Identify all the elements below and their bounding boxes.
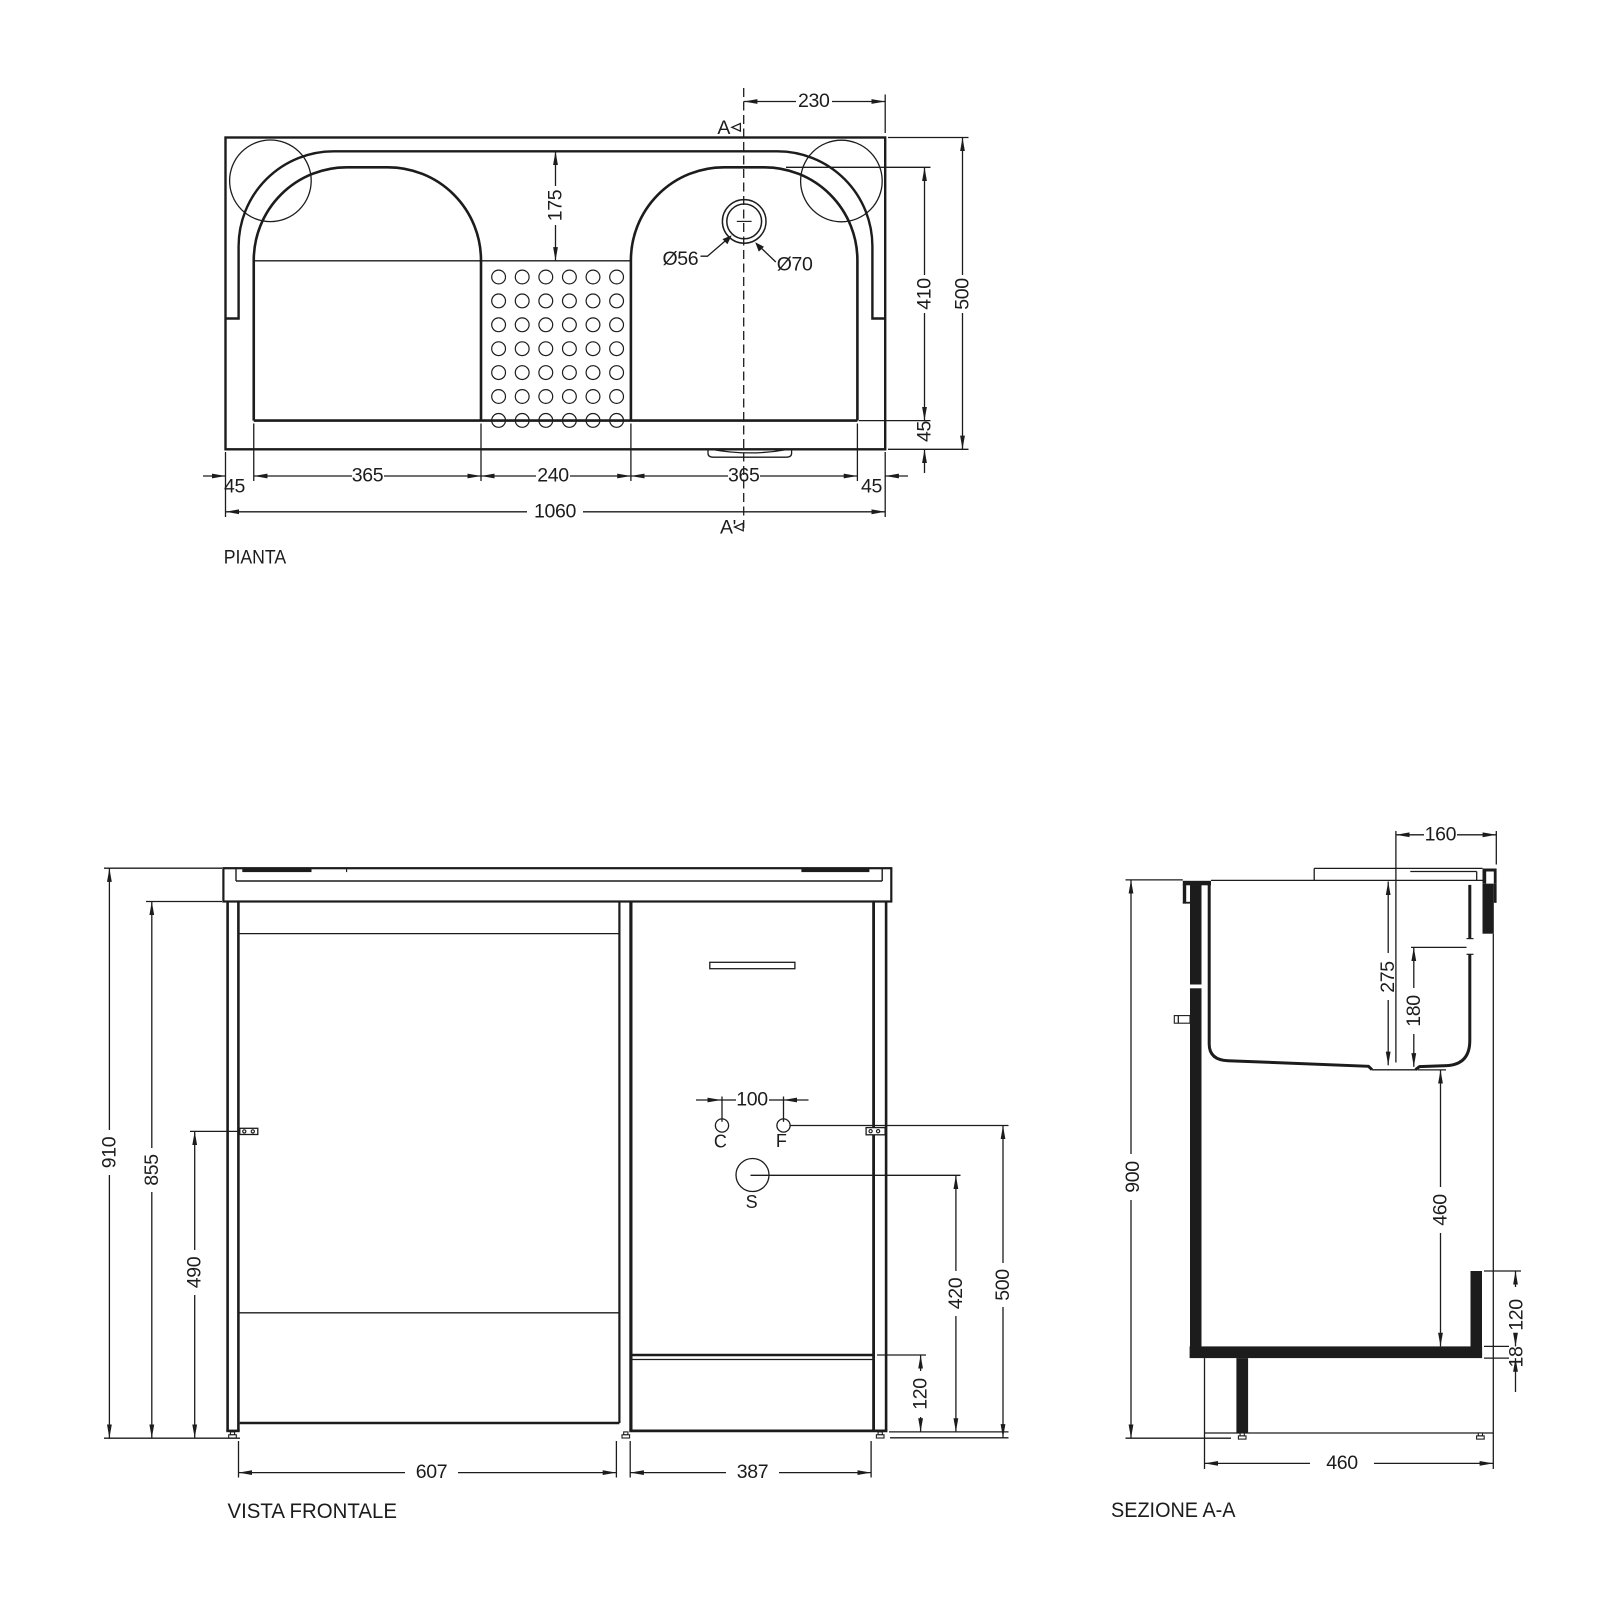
svg-text:160: 160 [1425,824,1457,846]
svg-text:SEZIONE A-A: SEZIONE A-A [1111,1499,1236,1522]
svg-text:500: 500 [992,1269,1014,1301]
svg-text:Ø56: Ø56 [662,248,698,270]
svg-text:C: C [714,1132,727,1152]
svg-text:100: 100 [736,1089,768,1111]
svg-text:900: 900 [1122,1161,1144,1193]
svg-text:365: 365 [728,465,760,487]
svg-text:45: 45 [224,476,245,498]
svg-text:275: 275 [1377,961,1399,993]
svg-text:1060: 1060 [534,500,576,522]
svg-text:VISTA FRONTALE: VISTA FRONTALE [228,1500,398,1523]
svg-text:420: 420 [945,1277,967,1309]
svg-text:460: 460 [1326,1452,1358,1474]
svg-text:490: 490 [184,1256,206,1288]
svg-text:500: 500 [952,278,974,310]
svg-text:855: 855 [141,1154,163,1186]
svg-text:F: F [776,1131,787,1151]
svg-text:PIANTA: PIANTA [224,547,287,569]
svg-text:120: 120 [910,1378,932,1410]
svg-text:180: 180 [1403,995,1425,1027]
svg-text:460: 460 [1430,1194,1452,1226]
svg-text:A': A' [720,517,736,539]
svg-text:607: 607 [416,1461,448,1483]
svg-text:240: 240 [537,465,569,487]
svg-text:387: 387 [737,1461,769,1483]
svg-text:18: 18 [1506,1347,1528,1368]
svg-text:410: 410 [914,278,936,310]
svg-text:Ø70: Ø70 [777,253,813,275]
svg-text:A: A [717,117,730,139]
svg-text:S: S [746,1192,758,1212]
svg-text:910: 910 [98,1136,120,1168]
svg-text:45: 45 [861,476,882,498]
svg-text:120: 120 [1506,1299,1528,1331]
svg-text:175: 175 [545,189,567,221]
svg-text:230: 230 [798,90,830,112]
svg-text:45: 45 [914,421,936,442]
svg-text:365: 365 [352,465,384,487]
